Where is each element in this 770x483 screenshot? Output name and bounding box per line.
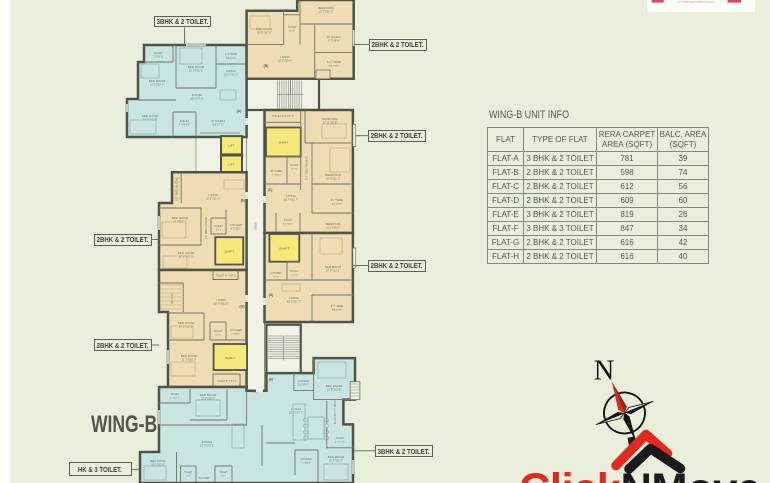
svg-text:11'.2"X10'.0": 11'.2"X10'.0" (326, 227, 339, 230)
svg-text:LIVING: LIVING (208, 193, 219, 197)
svg-text:SHAFT: SHAFT (224, 250, 234, 254)
svg-text:KITCHEN: KITCHEN (300, 457, 312, 461)
svg-text:LIVING: LIVING (280, 55, 291, 59)
svg-text:BEDROOM: BEDROOM (318, 6, 334, 10)
svg-text:LIFT: LIFT (228, 163, 234, 167)
svg-text:SHAFT: SHAFT (225, 356, 235, 360)
svg-text:BEDROOM: BEDROOM (325, 173, 341, 177)
svg-text:4'.2"X: 4'.2"X (291, 169, 297, 171)
svg-text:BALCONY: BALCONY (329, 65, 340, 68)
svg-text:8'.7" WIDE PASSAGE: 8'.7" WIDE PASSAGE (306, 156, 309, 180)
svg-text:(A): (A) (237, 109, 242, 113)
svg-text:LIVING: LIVING (289, 296, 300, 300)
svg-text:10'.2"X7'.0": 10'.2"X7'.0" (190, 97, 203, 101)
svg-text:LOBBY: LOBBY (254, 221, 258, 230)
svg-text:DINING: DINING (192, 93, 203, 97)
svg-text:KITCHEN: KITCHEN (230, 223, 242, 227)
svg-text:BED ROOM: BED ROOM (142, 114, 159, 118)
svg-text:TOILET: TOILET (180, 119, 190, 123)
svg-text:KITCHEN: KITCHEN (199, 477, 210, 480)
svg-text:ClickNMove: ClickNMove (519, 466, 761, 483)
svg-text:4'.2"X: 4'.2"X (215, 335, 221, 337)
svg-text:LIVING: LIVING (226, 69, 237, 73)
svg-text:4'.7"X8'.0": 4'.7"X8'.0" (272, 175, 282, 177)
svg-text:10'.2"X11'.2": 10'.2"X11'.2" (179, 325, 194, 329)
svg-text:10'.7"X15'.5": 10'.7"X15'.5" (214, 302, 229, 306)
svg-text:TOILET: TOILET (184, 471, 193, 474)
svg-text:11'.5"X10'.0": 11'.5"X10'.0" (179, 255, 194, 259)
svg-text:KITCHEN: KITCHEN (211, 119, 224, 123)
svg-text:14'.7" WIDE: 14'.7" WIDE (327, 60, 341, 64)
svg-text:7'.4"X5'.4": 7'.4"X5'.4" (153, 57, 164, 59)
svg-text:8'.7"X4'.2": 8'.7"X4'.2" (283, 224, 293, 226)
svg-text:BED ROOM: BED ROOM (188, 65, 205, 69)
svg-text:TOILET: TOILET (290, 270, 299, 273)
svg-text:6'.2"X4'.7": 6'.2"X4'.7" (170, 398, 180, 400)
svg-text:BALCONY: BALCONY (171, 292, 174, 304)
svg-text:TOILET: TOILET (287, 25, 296, 29)
svg-text:BALCONY: BALCONY (332, 203, 343, 206)
svg-text:TOILET: TOILET (335, 436, 344, 440)
svg-text:BED ROOM: BED ROOM (178, 251, 195, 255)
svg-text:TOILET 8'.7"X4'.2": TOILET 8'.7"X4'.2" (216, 275, 237, 278)
svg-text:BED ROOM: BED ROOM (150, 459, 166, 463)
svg-text:TOILET: TOILET (214, 225, 223, 228)
svg-text:KITCHEN: KITCHEN (271, 272, 282, 275)
svg-text:(G): (G) (240, 305, 245, 309)
svg-text:DINING: DINING (202, 440, 213, 444)
svg-text:KITCHEN: KITCHEN (271, 169, 283, 173)
svg-text:15'.7"X11'.7": 15'.7"X11'.7" (287, 300, 302, 304)
svg-text:BED ROOM: BED ROOM (325, 265, 342, 269)
svg-text:BED ROOM: BED ROOM (181, 354, 198, 358)
svg-text:(B): (B) (264, 64, 269, 68)
svg-text:10'.4"X11'.2": 10'.4"X11'.2" (326, 269, 341, 273)
svg-text:TOILET: TOILET (214, 330, 223, 333)
svg-text:TOILET 4'.2"X7'.4": TOILET 4'.2"X7'.4" (272, 114, 294, 118)
svg-text:(D): (D) (269, 293, 274, 297)
svg-text:6'.0"X8'.2": 6'.0"X8'.2" (231, 334, 241, 336)
svg-text:10'.2"X11'.0": 10'.2"X11'.0" (329, 459, 344, 463)
svg-text:TOILET: TOILET (153, 51, 163, 55)
svg-text:SHAFT: SHAFT (278, 141, 288, 145)
svg-text:4'.2"X: 4'.2"X (289, 31, 295, 33)
svg-text:10'.0"X8'.0": 10'.0"X8'.0" (297, 385, 309, 387)
svg-text:10'.0"X11'.0": 10'.0"X11'.0" (327, 388, 342, 392)
svg-text:(E): (E) (241, 199, 246, 203)
svg-text:KITCHEN: KITCHEN (230, 328, 242, 332)
svg-text:15'.0"X10'.2": 15'.0"X10'.2" (224, 73, 239, 77)
svg-text:15'.0"X14'.7": 15'.0"X14'.7" (289, 411, 304, 415)
svg-text:15'.5"X10'.5": 15'.5"X10'.5" (206, 197, 221, 201)
svg-text:4'.0" WIDE: 4'.0" WIDE (225, 52, 238, 56)
svg-text:BEDROOM: BEDROOM (326, 222, 341, 226)
svg-text:TOILET: TOILET (283, 218, 292, 222)
svg-text:10'.0"X10'.0": 10'.0"X10'.0" (257, 31, 272, 35)
svg-text:8'.7" WIDE: 8'.7" WIDE (331, 304, 344, 308)
svg-text:4'.0" WIDE BALCONY: 4'.0" WIDE BALCONY (176, 177, 179, 201)
svg-text:TOILET 8'.7"X4'.2": TOILET 8'.7"X4'.2" (217, 380, 237, 383)
svg-text:TOILET: TOILET (219, 471, 228, 474)
svg-text:KITCHEN: KITCHEN (297, 379, 309, 383)
svg-text:8'.7" WIDE: 8'.7" WIDE (331, 198, 344, 202)
svg-text:BALCONY 4'.7" WIDE: BALCONY 4'.7" WIDE (334, 400, 337, 424)
svg-text:TOILET: TOILET (290, 164, 299, 167)
svg-text:(C): (C) (268, 188, 273, 192)
svg-text:BED ROOM: BED ROOM (178, 321, 195, 325)
svg-text:4'.0"X: 4'.0"X (185, 476, 191, 478)
svg-text:BED ROOM: BED ROOM (200, 393, 217, 397)
svg-text:3'.4" WIDE PASSAGE: 3'.4" WIDE PASSAGE (205, 216, 208, 239)
svg-text:BED ROOM: BED ROOM (328, 455, 345, 459)
svg-text:10'.7"X11'.2": 10'.7"X11'.2" (200, 444, 215, 448)
svg-text:(E): (E) (269, 378, 273, 382)
svg-text:BED ROOM: BED ROOM (149, 79, 166, 83)
svg-text:BEDROOM: BEDROOM (322, 117, 338, 121)
svg-text:4'.7"X: 4'.7"X (273, 277, 279, 279)
svg-text:4'.2"X: 4'.2"X (291, 275, 297, 277)
svg-text:10'.0"X11'.8": 10'.0"X11'.8" (189, 69, 204, 73)
svg-text:15'.7"X11'.7": 15'.7"X11'.7" (284, 198, 299, 202)
svg-text:LIVING: LIVING (216, 298, 227, 302)
svg-text:N: N (594, 356, 615, 387)
svg-text:15'.0"X10'.4": 15'.0"X10'.4" (278, 59, 293, 63)
svg-text:4'.0"X: 4'.0"X (221, 476, 227, 478)
svg-text:BALCONY: BALCONY (332, 309, 343, 312)
svg-text:KITCHEN: KITCHEN (327, 35, 340, 39)
svg-text:7'.2"X8'.0": 7'.2"X8'.0" (301, 463, 311, 465)
svg-text:an ISO 9001-2015 Certified Com: an ISO 9001-2015 Certified Company (678, 0, 716, 3)
svg-text:4'.0"X7'.4": 4'.0"X7'.4" (335, 442, 345, 444)
svg-text:7'.4"X 4'.2": 7'.4"X 4'.2" (179, 125, 190, 127)
svg-text:BED ROOM: BED ROOM (172, 216, 189, 220)
svg-text:8'.0"X8'.7": 8'.0"X8'.7" (231, 229, 242, 231)
svg-text:11'.5"X10'.0": 11'.5"X10'.0" (182, 358, 197, 362)
svg-text:BALCONY: BALCONY (226, 57, 237, 60)
svg-text:LIVING: LIVING (286, 194, 297, 198)
svg-text:14'.0"X10'.0": 14'.0"X10'.0" (143, 118, 158, 122)
svg-text:TOILET: TOILET (170, 392, 179, 396)
svg-text:BED ROOM: BED ROOM (326, 384, 343, 388)
svg-text:10'.0"X10'.6": 10'.0"X10'.6" (150, 83, 165, 87)
svg-text:9'.6"X7'.0": 9'.6"X7'.0" (212, 123, 224, 127)
svg-text:LIFT: LIFT (228, 144, 234, 148)
svg-text:4'.2"X: 4'.2"X (216, 230, 222, 232)
svg-text:8'.7"X8'.4": 8'.7"X8'.4" (328, 39, 340, 43)
svg-text:10'.7"X10'.0": 10'.7"X10'.0" (319, 10, 334, 14)
svg-text:SHAFT: SHAFT (279, 247, 289, 251)
svg-text:10'.4"X11'.2": 10'.4"X11'.2" (326, 177, 341, 181)
